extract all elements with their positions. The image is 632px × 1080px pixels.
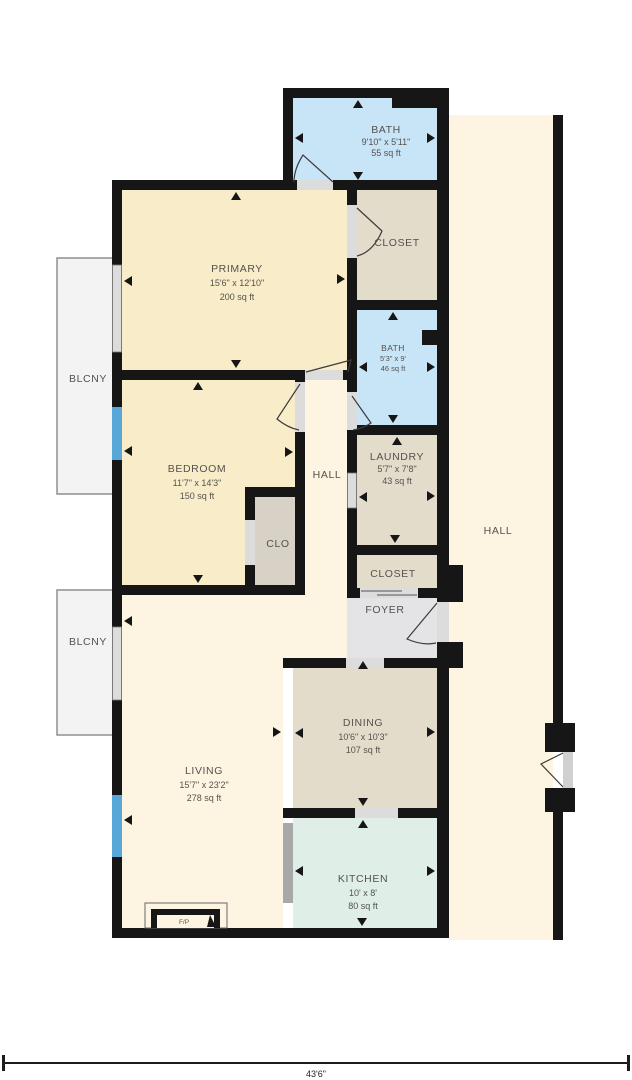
hall-center-area bbox=[305, 380, 347, 658]
floor-plan-canvas: F/P BATH 9'10" x 5'11" 55 sq ft CLOSET P… bbox=[0, 0, 632, 1080]
living-dims: 15'7" x 23'2" bbox=[179, 780, 228, 790]
dining-dims: 10'6" x 10'3" bbox=[338, 732, 387, 742]
overall-width-label: 43'6" bbox=[306, 1069, 326, 1079]
primary-area: 200 sq ft bbox=[220, 292, 255, 302]
fireplace-label: F/P bbox=[179, 919, 189, 926]
dining-area: 107 sq ft bbox=[346, 745, 381, 755]
dining-name: DINING bbox=[343, 717, 383, 729]
hall-right-label: HALL bbox=[484, 525, 513, 537]
hall-door-slab bbox=[563, 752, 573, 788]
foyer-label: FOYER bbox=[365, 604, 404, 616]
primary-dims: 15'6" x 12'10" bbox=[210, 278, 264, 288]
balcony-lower-area bbox=[57, 590, 120, 735]
kitchen-dims: 10' x 8' bbox=[349, 888, 377, 898]
primary-window bbox=[113, 265, 122, 352]
laundry-dims: 5'7" x 7'8" bbox=[377, 464, 416, 474]
bath-top-name: BATH bbox=[371, 124, 401, 136]
clo-label: CLO bbox=[266, 538, 289, 550]
laundry-name: LAUNDRY bbox=[370, 451, 424, 463]
closet-primary-name: CLOSET bbox=[374, 237, 420, 249]
bath-hall-name: BATH bbox=[381, 343, 405, 353]
living-area: 278 sq ft bbox=[187, 793, 222, 803]
kitchen-doorway bbox=[283, 823, 293, 903]
living-name: LIVING bbox=[185, 765, 223, 777]
balconies bbox=[57, 258, 120, 735]
balcony-upper-label: BLCNY bbox=[69, 373, 107, 385]
bedroom-name: BEDROOM bbox=[168, 463, 226, 475]
bath-hall-area: 46 sq ft bbox=[381, 364, 407, 373]
hall-center-label: HALL bbox=[313, 469, 342, 481]
living-balcony-window bbox=[112, 795, 122, 857]
kitchen-name: KITCHEN bbox=[338, 873, 388, 885]
bath-top-area: 55 sq ft bbox=[371, 148, 401, 158]
balcony-lower-window bbox=[113, 627, 122, 700]
bedroom-dims: 11'7" x 14'3" bbox=[173, 478, 222, 488]
dimension-line: 43'6" bbox=[2, 1055, 630, 1079]
floor-plan: F/P BATH 9'10" x 5'11" 55 sq ft CLOSET P… bbox=[0, 0, 632, 1080]
bedroom-balcony-window bbox=[112, 407, 122, 460]
bedroom-area: 150 sq ft bbox=[180, 491, 215, 501]
laundry-area: 43 sq ft bbox=[382, 476, 412, 486]
fireplace: F/P bbox=[145, 903, 227, 928]
living-upper-area bbox=[122, 595, 305, 658]
bath-top-dims: 9'10" x 5'11" bbox=[362, 137, 411, 147]
closet-entry-label: CLOSET bbox=[370, 568, 416, 580]
bath-hall-dims: 5'3" x 9' bbox=[380, 354, 407, 363]
balcony-lower-label: BLCNY bbox=[69, 636, 107, 648]
kitchen-area: 80 sq ft bbox=[348, 901, 378, 911]
primary-name: PRIMARY bbox=[211, 263, 263, 275]
laundry-window bbox=[348, 473, 357, 508]
